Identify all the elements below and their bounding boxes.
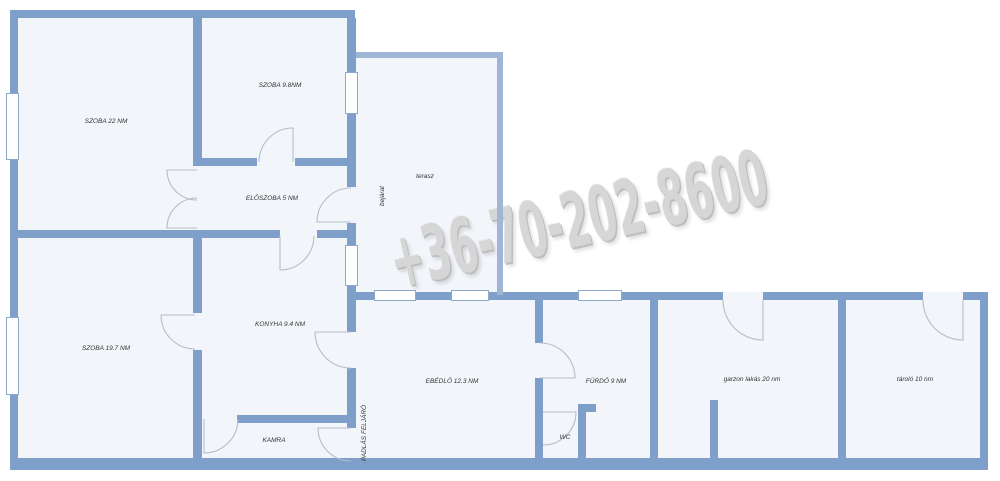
wall-szoba22-szoba98	[193, 18, 202, 158]
wall-konyha-ebedlo-2	[347, 368, 356, 428]
wall-kamra-top	[237, 415, 355, 423]
wall-outer-left-3	[10, 395, 18, 458]
wall-terasz-top	[350, 52, 503, 58]
wall-wing-top-1	[347, 292, 374, 300]
room-label-szoba98: SZOBA 9.8NM	[259, 83, 302, 90]
wall-ebedlo-furdo-2	[535, 378, 543, 458]
window-szoba98-terasz	[345, 72, 358, 114]
room-label-padlas-feljaro: PADLÁS FELJÁRÓ	[362, 405, 369, 461]
window-szoba197-left	[6, 317, 19, 395]
room-label-tarolo: tároló 10 nm	[897, 377, 933, 384]
window-ebedlo-top-1	[374, 290, 416, 301]
wall-outer-left-1	[10, 18, 18, 93]
wall-wing-top-2	[416, 292, 451, 300]
wall-wing-top-4	[622, 292, 723, 300]
wall-outer-left-2	[10, 160, 18, 317]
wall-garzon-stub	[710, 400, 718, 458]
window-ebedlo-top-2	[451, 290, 489, 301]
room-label-furdo: FÜRDŐ 9 NM	[586, 379, 626, 386]
wall-mid-right-4	[347, 286, 356, 292]
wall-outer-right	[980, 292, 988, 470]
room-label-ebedlo: EBÉDLŐ 12.3 NM	[426, 379, 479, 386]
room-label-garzon: garzon lakás 20 nm	[724, 377, 781, 384]
wall-szoba197-konyha-2	[193, 350, 202, 458]
wall-ebedlo-furdo-1	[535, 300, 543, 343]
floor-top-left-block	[10, 10, 355, 238]
wall-furdo-garzon	[650, 300, 658, 458]
window-szoba22-left	[6, 93, 19, 160]
room-label-szoba22: SZOBA 22 NM	[85, 119, 128, 126]
wall-garzon-tarolo	[838, 300, 846, 458]
wall-middle-divider-left	[10, 230, 280, 238]
room-label-eloszoba: ELŐSZOBA 5 NM	[246, 196, 298, 203]
room-label-konyha: KONYHA 9.4 NM	[255, 322, 305, 329]
wall-wc-right	[578, 412, 586, 458]
wall-mid-right-2	[347, 114, 356, 187]
wall-wc-top-stub	[578, 404, 596, 412]
wall-szoba197-konyha-1	[193, 238, 202, 313]
wall-outer-top	[10, 10, 355, 18]
room-label-szoba197: SZOBA 19.7 NM	[82, 346, 130, 353]
floor-bottom-left-block	[10, 230, 355, 470]
wall-outer-bottom	[10, 458, 988, 470]
room-label-kamra: KAMRA	[262, 438, 285, 445]
wall-eloszoba-top-right	[295, 158, 355, 166]
room-label-bejarat: bejárat	[380, 186, 387, 206]
wall-wing-top-5	[763, 292, 923, 300]
window-konyha-terasz	[345, 245, 358, 286]
room-label-terasz: terasz	[416, 174, 434, 181]
wall-eloszoba-top-left	[193, 158, 257, 166]
wall-mid-right-1	[347, 18, 356, 72]
wall-mid-right-3	[347, 223, 356, 245]
wall-terasz-right	[497, 58, 503, 295]
room-label-wc: WC	[560, 435, 571, 442]
floor-plan: +36-70-202-8600	[0, 0, 1000, 481]
window-furdo-top	[578, 290, 622, 301]
wall-konyha-ebedlo-1	[347, 300, 356, 332]
